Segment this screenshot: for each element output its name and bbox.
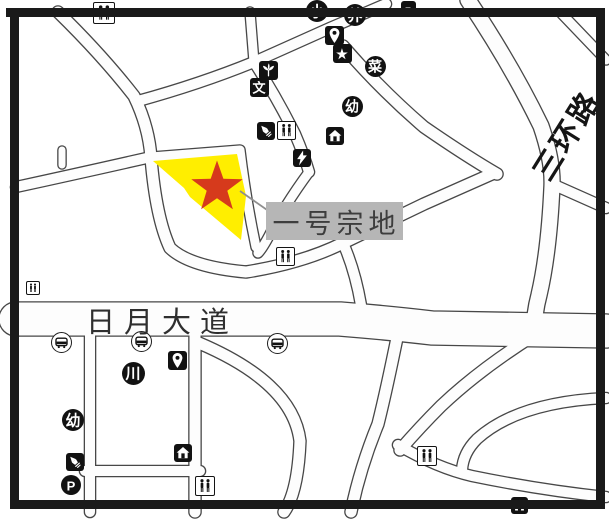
toilet-icon [276, 247, 295, 266]
road-fills [16, 0, 606, 512]
map-frame-right [596, 8, 605, 509]
map-canvas [0, 0, 609, 519]
location-pin-icon [325, 26, 344, 45]
kindergarten-icon: 幼 [342, 96, 363, 117]
lightning-icon [293, 149, 311, 167]
toilet-icon [195, 476, 215, 496]
road [250, 12, 254, 62]
toilet-icon [277, 121, 296, 140]
vegetable-market-icon: 菜 [365, 56, 386, 77]
rocket-icon [66, 453, 84, 471]
road [351, 338, 397, 512]
flower-icon [259, 61, 278, 80]
kindergarten-icon: 幼 [62, 409, 84, 431]
chuan-icon: 川 [122, 362, 145, 385]
bus-stop-icon [267, 333, 288, 354]
rocket-icon [257, 122, 275, 140]
road [16, 157, 151, 187]
location-pin-icon [168, 351, 187, 370]
bus-stop-icon [51, 332, 72, 353]
parcel-label: 一号宗地 [266, 202, 403, 240]
star-poi-icon: ★ [333, 44, 352, 63]
map-frame-top [6, 8, 605, 17]
home-icon [174, 444, 192, 462]
toilet-icon [417, 446, 437, 466]
road-label-riyue-avenue: 日月大道 [86, 299, 256, 333]
map-frame-bottom [10, 500, 605, 509]
road [343, 243, 361, 305]
map-frame-left [10, 8, 19, 509]
road [400, 334, 536, 450]
home-icon [326, 127, 344, 145]
map: 日月大道 三环路 一号宗地 –小养★菜文幼川幼P [0, 0, 609, 519]
road [462, 398, 606, 470]
toilet-icon [26, 281, 40, 295]
culture-icon: 文 [250, 78, 269, 97]
parking-icon: P [61, 475, 81, 495]
